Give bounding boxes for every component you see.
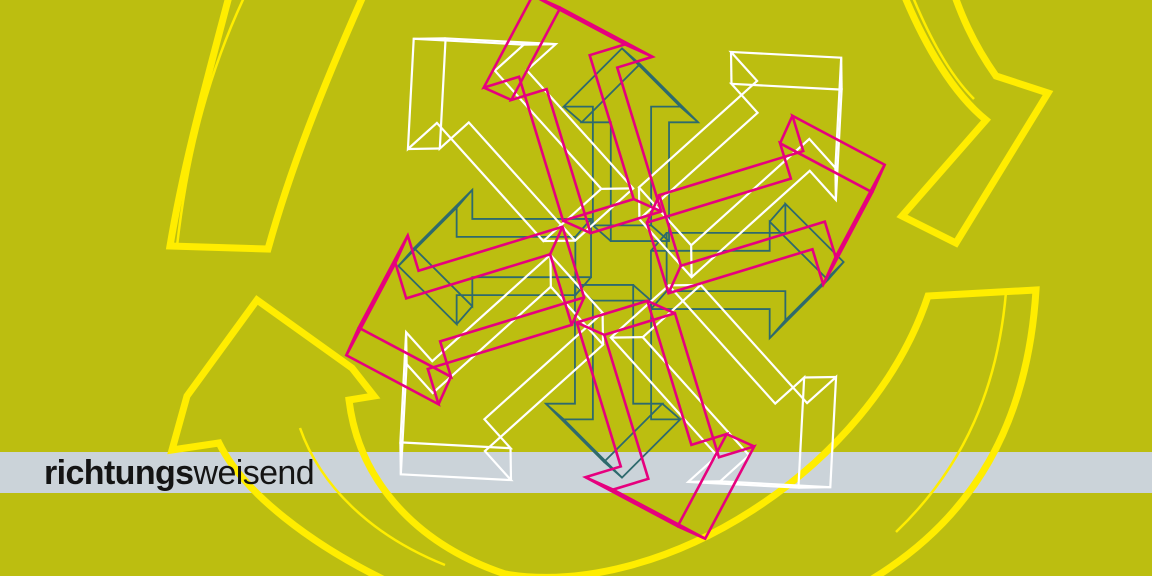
claim-text-regular: weisend	[194, 456, 315, 490]
artwork-canvas: richtungsweisend	[0, 0, 1152, 576]
claim-banner: richtungsweisend	[0, 452, 1152, 493]
claim-text-bold: richtungs	[44, 456, 194, 490]
